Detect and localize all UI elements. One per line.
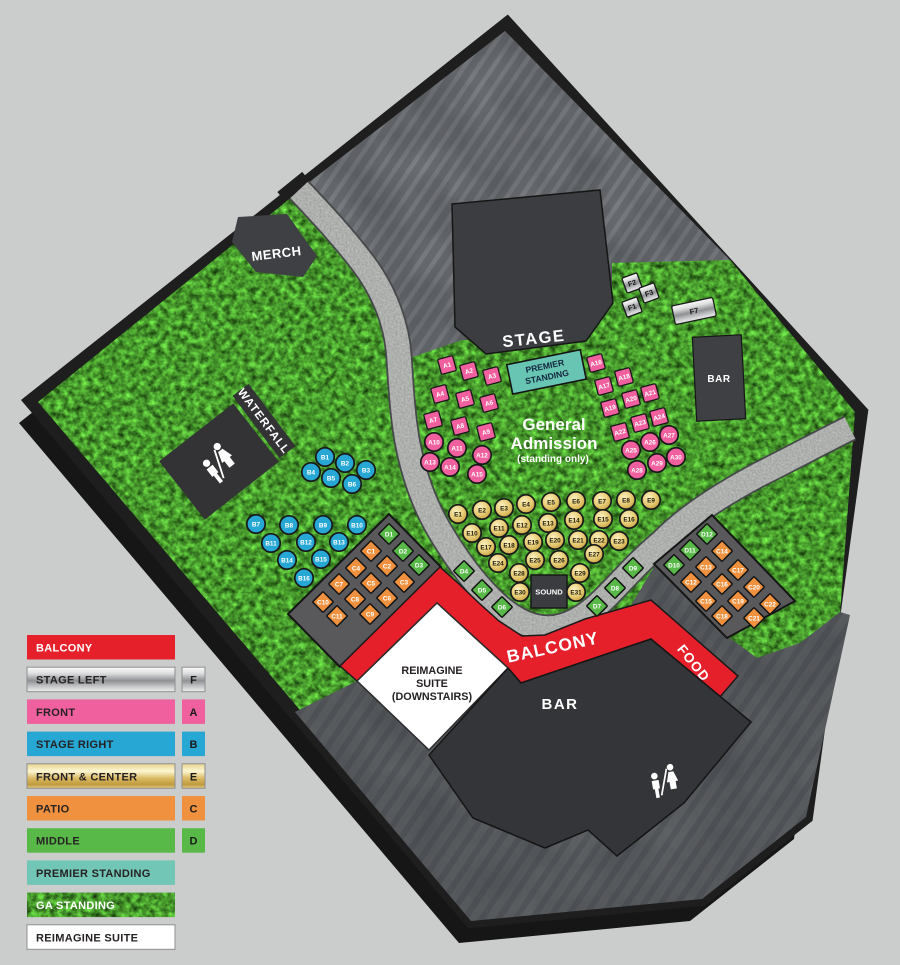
svg-text:D12: D12: [701, 531, 713, 538]
svg-text:D4: D4: [460, 568, 469, 575]
svg-text:E3: E3: [500, 505, 508, 512]
svg-text:C1: C1: [367, 548, 376, 555]
svg-text:E10: E10: [466, 530, 478, 537]
svg-text:E30: E30: [514, 589, 526, 596]
svg-text:E20: E20: [549, 537, 561, 544]
svg-text:E25: E25: [529, 557, 541, 564]
svg-text:D3: D3: [415, 562, 424, 569]
svg-text:E19: E19: [527, 539, 539, 546]
svg-text:C3: C3: [400, 579, 409, 586]
svg-text:A12: A12: [476, 452, 488, 459]
svg-text:STAGE RIGHT: STAGE RIGHT: [36, 739, 114, 751]
svg-text:F7: F7: [689, 306, 699, 317]
svg-text:E2: E2: [478, 507, 486, 514]
svg-text:C11: C11: [331, 613, 343, 620]
svg-text:Admission: Admission: [511, 434, 598, 453]
svg-text:A11: A11: [451, 445, 463, 452]
svg-text:E1: E1: [454, 511, 462, 518]
svg-text:A10: A10: [428, 439, 440, 446]
svg-text:E26: E26: [553, 557, 565, 564]
svg-text:A26: A26: [644, 439, 656, 446]
svg-text:D1: D1: [385, 531, 394, 538]
svg-text:F: F: [190, 675, 197, 687]
svg-text:B13: B13: [333, 539, 345, 546]
svg-text:A27: A27: [663, 432, 675, 439]
svg-text:D11: D11: [684, 547, 696, 554]
svg-text:C18: C18: [716, 613, 728, 620]
svg-text:BAR: BAR: [542, 696, 579, 713]
svg-text:D2: D2: [399, 548, 408, 555]
svg-text:MIDDLE: MIDDLE: [36, 836, 80, 848]
svg-text:E13: E13: [542, 520, 554, 527]
svg-text:B3: B3: [362, 467, 371, 474]
svg-text:B5: B5: [327, 475, 336, 482]
svg-text:E: E: [190, 771, 197, 783]
svg-text:E24: E24: [492, 560, 504, 567]
svg-text:E8: E8: [622, 497, 630, 504]
svg-text:C22: C22: [764, 601, 776, 608]
svg-text:FRONT: FRONT: [36, 707, 75, 719]
svg-text:E22: E22: [593, 537, 605, 544]
svg-text:E14: E14: [568, 517, 580, 524]
svg-text:E15: E15: [597, 516, 609, 523]
svg-text:REIMAGINE SUITE: REIMAGINE SUITE: [36, 932, 138, 944]
svg-text:C16: C16: [716, 581, 728, 588]
svg-text:PATIO: PATIO: [36, 804, 70, 816]
svg-text:D: D: [190, 836, 198, 848]
svg-text:D8: D8: [611, 585, 620, 592]
svg-text:E12: E12: [516, 522, 528, 529]
svg-text:A28: A28: [631, 467, 643, 474]
svg-text:D7: D7: [593, 603, 602, 610]
svg-text:SUITE: SUITE: [416, 678, 448, 690]
svg-text:E11: E11: [493, 525, 504, 532]
svg-text:C4: C4: [352, 565, 361, 572]
svg-text:FRONT & CENTER: FRONT & CENTER: [36, 771, 137, 783]
svg-text:E29: E29: [574, 570, 586, 577]
svg-text:A: A: [190, 707, 198, 719]
svg-text:A15: A15: [471, 471, 483, 478]
svg-text:D5: D5: [478, 587, 487, 594]
svg-text:C12: C12: [685, 579, 697, 586]
svg-text:General: General: [522, 415, 585, 434]
svg-text:A13: A13: [424, 459, 436, 466]
svg-text:D10: D10: [668, 562, 680, 569]
svg-text:B4: B4: [307, 469, 316, 476]
svg-text:E28: E28: [513, 570, 525, 577]
svg-text:E31: E31: [570, 589, 582, 596]
svg-text:(standing only): (standing only): [517, 454, 589, 465]
svg-text:C13: C13: [700, 564, 712, 571]
svg-text:E16: E16: [623, 516, 635, 523]
svg-text:B8: B8: [285, 522, 294, 529]
svg-text:E17: E17: [480, 544, 492, 551]
svg-text:BAR: BAR: [707, 374, 730, 385]
svg-text:SOUND: SOUND: [535, 588, 563, 597]
svg-text:D9: D9: [629, 565, 638, 572]
svg-text:B2: B2: [341, 460, 350, 467]
svg-text:C10: C10: [317, 599, 329, 606]
svg-text:REIMAGINE: REIMAGINE: [401, 665, 462, 677]
svg-text:C20: C20: [748, 584, 760, 591]
svg-text:PREMIER STANDING: PREMIER STANDING: [36, 868, 151, 880]
svg-text:C5: C5: [367, 580, 376, 587]
svg-text:B: B: [190, 739, 198, 751]
svg-text:B12: B12: [300, 539, 312, 546]
svg-text:E27: E27: [588, 551, 600, 558]
svg-text:C21: C21: [748, 615, 760, 622]
svg-text:A29: A29: [651, 460, 663, 467]
svg-text:B7: B7: [252, 521, 261, 528]
svg-text:A14: A14: [444, 464, 456, 471]
svg-text:E9: E9: [647, 497, 655, 504]
svg-text:STAGE LEFT: STAGE LEFT: [36, 675, 107, 687]
svg-text:C7: C7: [335, 581, 344, 588]
svg-text:C15: C15: [700, 598, 712, 605]
svg-text:A30: A30: [670, 454, 682, 461]
svg-text:B11: B11: [265, 540, 277, 547]
svg-text:C: C: [190, 804, 198, 816]
svg-text:B15: B15: [315, 556, 327, 563]
svg-text:E18: E18: [503, 542, 515, 549]
svg-text:E7: E7: [598, 498, 606, 505]
svg-text:B14: B14: [281, 557, 293, 564]
svg-text:B9: B9: [319, 522, 328, 529]
svg-text:C19: C19: [732, 598, 744, 605]
svg-text:D6: D6: [498, 604, 507, 611]
svg-text:BALCONY: BALCONY: [36, 643, 93, 655]
svg-text:B1: B1: [321, 454, 330, 461]
svg-text:C2: C2: [383, 563, 392, 570]
svg-text:E4: E4: [522, 501, 530, 508]
svg-text:(DOWNSTAIRS): (DOWNSTAIRS): [392, 691, 473, 703]
svg-text:C17: C17: [732, 567, 744, 574]
svg-text:A25: A25: [625, 447, 637, 454]
svg-text:E5: E5: [547, 499, 555, 506]
svg-text:GA STANDING: GA STANDING: [36, 900, 115, 912]
svg-text:B10: B10: [351, 522, 363, 529]
svg-text:C9: C9: [366, 611, 375, 618]
svg-text:E21: E21: [572, 537, 584, 544]
svg-text:B16: B16: [298, 575, 310, 582]
svg-text:C14: C14: [716, 548, 728, 555]
svg-text:B6: B6: [348, 481, 357, 488]
svg-text:E23: E23: [613, 538, 625, 545]
svg-text:C8: C8: [351, 596, 360, 603]
svg-text:E6: E6: [572, 498, 580, 505]
svg-text:C6: C6: [383, 595, 392, 602]
